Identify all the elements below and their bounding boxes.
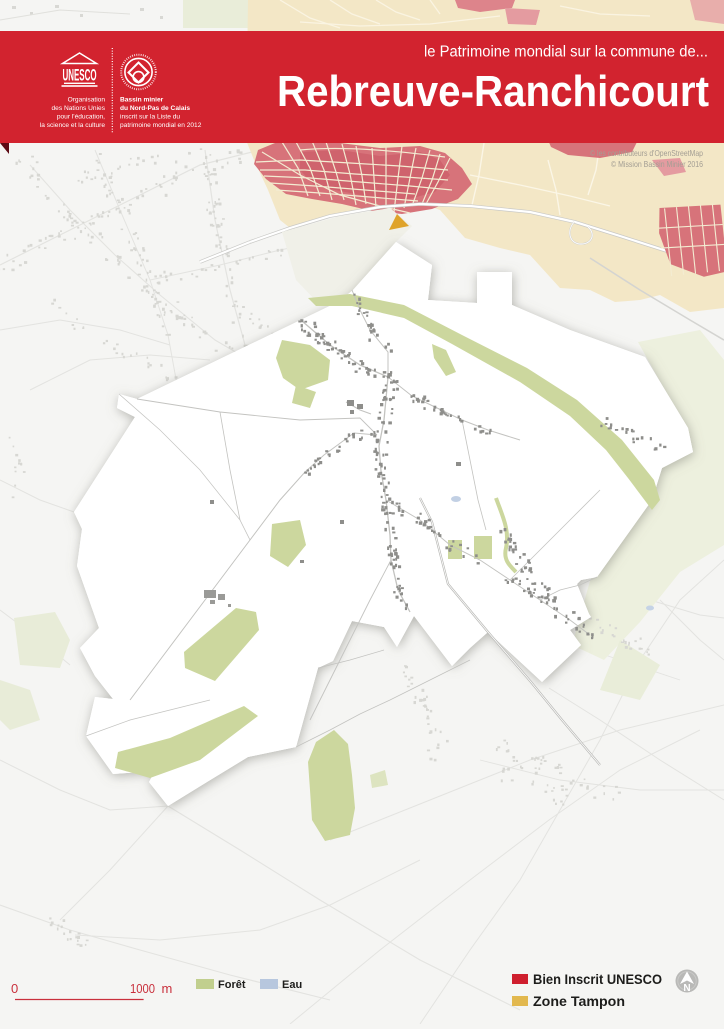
svg-text:inscrit sur la Liste du: inscrit sur la Liste du	[120, 114, 180, 121]
svg-text:pour l'éducation,: pour l'éducation,	[57, 114, 105, 121]
svg-text:Organisation: Organisation	[68, 97, 106, 104]
svg-text:Rebreuve-Ranchicourt: Rebreuve-Ranchicourt	[277, 67, 709, 116]
svg-text:m: m	[162, 981, 173, 996]
svg-text:Bien Inscrit UNESCO: Bien Inscrit UNESCO	[533, 972, 662, 987]
svg-text:1000: 1000	[130, 981, 155, 996]
svg-text:le Patrimoine mondial sur la c: le Patrimoine mondial sur la commune de.…	[424, 44, 708, 61]
svg-text:des Nations Unies: des Nations Unies	[51, 105, 105, 112]
svg-text:© les contributeurs d'OpenStre: © les contributeurs d'OpenStreetMap	[590, 148, 703, 158]
svg-text:la science et la culture: la science et la culture	[40, 122, 106, 129]
svg-text:N: N	[683, 983, 690, 994]
svg-text:Eau: Eau	[282, 979, 302, 991]
svg-text:Bassin minier: Bassin minier	[120, 97, 164, 104]
svg-text:Forêt: Forêt	[218, 979, 246, 991]
svg-text:Zone Tampon: Zone Tampon	[533, 994, 625, 1009]
svg-text:UNESCO: UNESCO	[63, 67, 97, 85]
svg-text:du Nord-Pas de Calais: du Nord-Pas de Calais	[120, 105, 190, 112]
svg-text:patrimoine mondial en 2012: patrimoine mondial en 2012	[120, 122, 202, 129]
svg-text:0: 0	[11, 981, 18, 996]
svg-text:© Mission Bassin Minier 2016: © Mission Bassin Minier 2016	[611, 159, 703, 169]
